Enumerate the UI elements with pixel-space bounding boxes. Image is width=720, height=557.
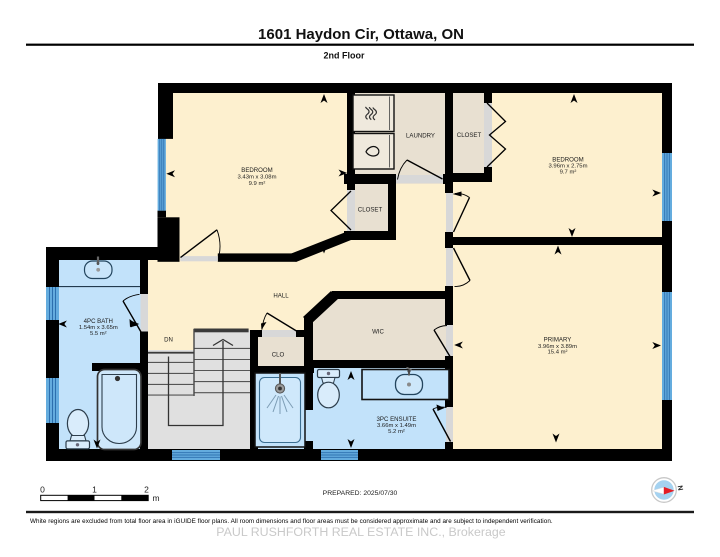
svg-text:5.2 m²: 5.2 m² (388, 429, 405, 435)
svg-text:PAUL RUSHFORTH REAL ESTATE INC: PAUL RUSHFORTH REAL ESTATE INC., Brokera… (216, 525, 506, 539)
svg-text:4PC BATH: 4PC BATH (84, 318, 113, 325)
svg-text:2nd Floor: 2nd Floor (324, 51, 365, 61)
svg-text:PREPARED: 2025/07/30: PREPARED: 2025/07/30 (323, 490, 398, 497)
svg-text:CLOSET: CLOSET (457, 132, 482, 139)
svg-text:5.5 m²: 5.5 m² (90, 331, 107, 337)
svg-text:9.9 m²: 9.9 m² (249, 181, 266, 187)
svg-text:CLO: CLO (272, 351, 285, 358)
svg-text:1601 Haydon Cir, Ottawa, ON: 1601 Haydon Cir, Ottawa, ON (258, 26, 464, 43)
svg-text:3PC ENSUITE: 3PC ENSUITE (377, 416, 417, 423)
svg-text:9.7 m²: 9.7 m² (560, 170, 577, 176)
svg-text:PRIMARY: PRIMARY (544, 337, 572, 344)
svg-text:DN: DN (164, 337, 173, 344)
svg-text:White regions are excluded fro: White regions are excluded from total fl… (30, 518, 553, 525)
svg-text:BEDROOM: BEDROOM (241, 167, 273, 174)
svg-text:2: 2 (144, 485, 149, 495)
svg-text:15.4 m²: 15.4 m² (548, 350, 568, 356)
svg-text:m: m (153, 493, 160, 503)
svg-text:BEDROOM: BEDROOM (552, 157, 584, 164)
svg-text:LAUNDRY: LAUNDRY (406, 132, 435, 139)
svg-text:CLOSET: CLOSET (358, 206, 383, 213)
svg-text:HALL: HALL (273, 292, 289, 299)
svg-text:WIC: WIC (372, 328, 384, 335)
svg-text:1: 1 (92, 485, 97, 495)
svg-text:3.43m x 3.08m: 3.43m x 3.08m (238, 175, 277, 181)
svg-text:0: 0 (40, 485, 45, 495)
